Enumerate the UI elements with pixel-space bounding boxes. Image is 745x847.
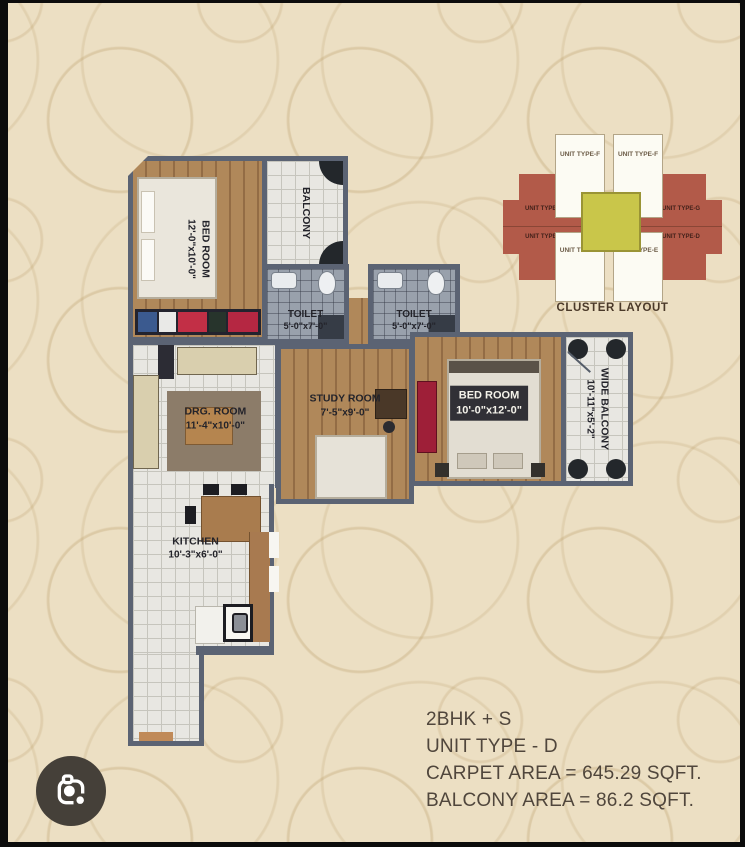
room-label: DRG. ROOM 11'-4"x10'-0"	[184, 406, 246, 433]
bed	[315, 435, 387, 499]
room-bedroom-1: BED ROOM 12'-0"x10'-0"	[128, 156, 268, 342]
google-lens-button[interactable]	[36, 756, 106, 826]
letterbox-left	[0, 0, 8, 847]
info-line-carpet-area: CARPET AREA = 645.29 SQFT.	[426, 760, 702, 787]
room-label: TOILET 5'-0"x7'-0"	[284, 308, 328, 333]
washbasin	[377, 272, 403, 289]
room-study: STUDY ROOM 7'-5"x9'-0"	[276, 344, 414, 504]
pillow	[457, 453, 487, 469]
room-label: BALCONY	[298, 187, 312, 239]
letterbox-bottom	[0, 842, 745, 847]
pillow	[141, 239, 155, 281]
room-drawing: DRG. ROOM 11'-4"x10'-0"	[128, 340, 280, 488]
washbasin	[271, 272, 297, 289]
image-viewer: BED ROOM 12'-0"x10'-0" BALCONY	[0, 0, 745, 847]
plant	[606, 459, 626, 479]
wc	[427, 271, 445, 295]
info-line-unit-type: UNIT TYPE - D	[426, 733, 702, 760]
cluster-core	[581, 192, 641, 252]
sink	[223, 604, 253, 642]
sink-basin	[232, 613, 248, 633]
wardrobe	[417, 381, 437, 453]
tv-unit	[158, 345, 174, 379]
plant	[319, 161, 343, 185]
cluster-red-shape	[656, 174, 706, 200]
cluster-divider	[640, 226, 722, 227]
kitchen-counter	[195, 606, 225, 644]
plant	[606, 339, 626, 359]
chair	[231, 484, 247, 495]
wardrobe-panel	[159, 312, 176, 332]
plant	[568, 459, 588, 479]
chair	[383, 421, 395, 433]
letterbox-right	[740, 0, 745, 847]
letterbox-top	[0, 0, 745, 3]
chair	[185, 506, 196, 524]
cluster-red-shape	[656, 254, 706, 280]
wardrobe-panel	[138, 312, 157, 332]
wall-segment	[196, 646, 274, 655]
room-label: STUDY ROOM 7'-5"x9'-0"	[310, 393, 381, 420]
pillow	[493, 453, 523, 469]
unit-info: 2BHK + S UNIT TYPE - D CARPET AREA = 645…	[426, 706, 702, 814]
wc	[318, 271, 336, 295]
room-label: TOILET 5'-0"x7'-0"	[392, 308, 436, 333]
cluster-divider	[503, 226, 585, 227]
room-label: KITCHEN 10'-3"x6'-0"	[168, 535, 222, 562]
room-bedroom-2: BED ROOM 10'-0"x12'-0"	[410, 332, 568, 486]
wardrobe-panel	[228, 312, 258, 332]
door-opening	[269, 532, 279, 558]
room-kitchen: KITCHEN 10'-3"x6'-0"	[128, 484, 274, 654]
room-balcony: BALCONY	[262, 156, 348, 270]
plant	[319, 241, 343, 265]
info-line-balcony-area: BALCONY AREA = 86.2 SQFT.	[426, 787, 702, 814]
nightstand	[435, 463, 449, 477]
corridor	[128, 654, 204, 746]
info-line-bhk: 2BHK + S	[426, 706, 702, 733]
room-wide-balcony: WIDE BALCONY 10'-11"x5'-2"	[561, 332, 633, 486]
headboard	[449, 361, 539, 373]
nightstand	[531, 463, 545, 477]
room-label: BED ROOM 10'-0"x12'-0"	[450, 386, 528, 421]
room-label: BED ROOM 12'-0"x10'-0"	[185, 219, 212, 279]
room-toilet-1: TOILET 5'-0"x7'-0"	[262, 264, 349, 344]
sofa	[177, 347, 257, 375]
sofa	[133, 375, 159, 469]
floorplan-photo[interactable]: BED ROOM 12'-0"x10'-0" BALCONY	[0, 0, 745, 847]
chair	[203, 484, 219, 495]
google-lens-icon	[51, 771, 91, 811]
wardrobe-panel	[209, 312, 226, 332]
door-opening	[269, 566, 279, 592]
room-label: WIDE BALCONY 10'-11"x5'-2"	[584, 368, 611, 450]
entrance-passage	[349, 298, 368, 346]
threshold	[139, 732, 173, 741]
pillow	[141, 191, 155, 233]
cluster-layout: UNIT TYPE-G UNIT TYPE-D UNIT TYPE-G UNIT…	[505, 128, 720, 318]
wardrobe-panel	[178, 312, 207, 332]
wardrobe	[135, 309, 261, 335]
cluster-title: CLUSTER LAYOUT	[505, 302, 720, 314]
